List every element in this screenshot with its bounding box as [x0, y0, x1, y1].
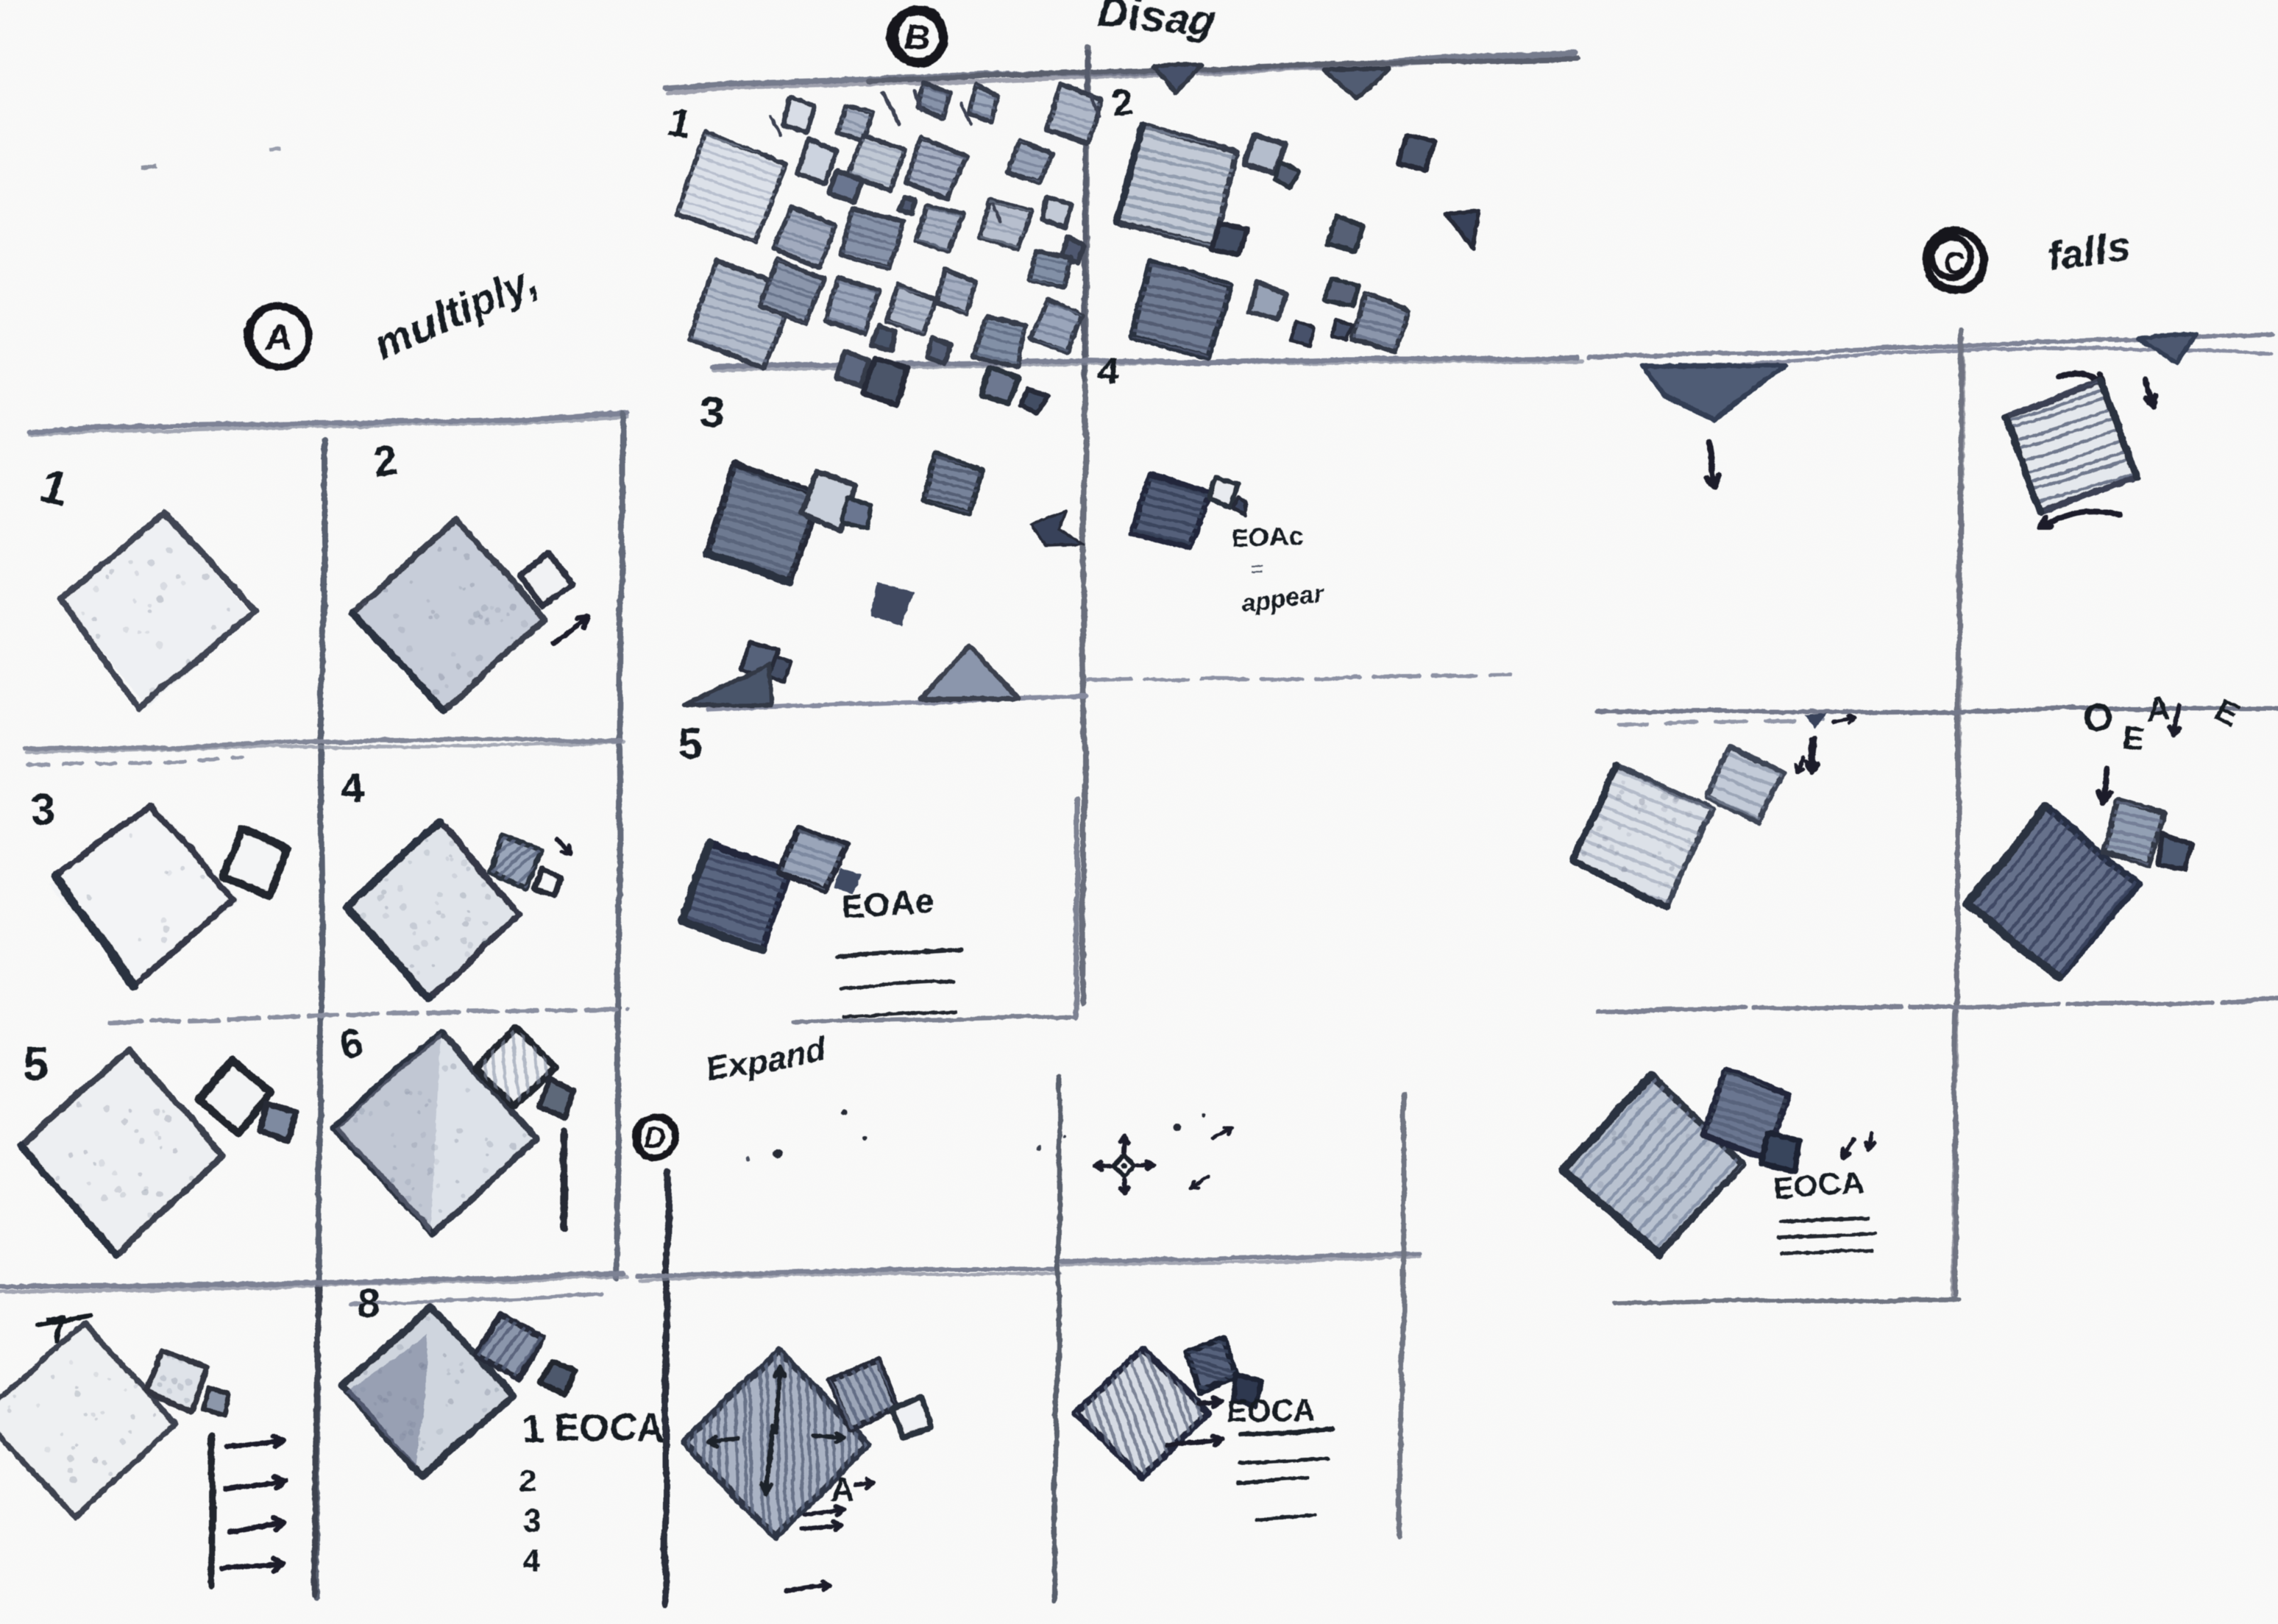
svg-text:D: D: [645, 1122, 666, 1155]
svg-text:2: 2: [518, 1464, 536, 1500]
svg-text:2: 2: [1109, 80, 1135, 125]
svg-text:A: A: [263, 317, 292, 360]
svg-text:EOAc: EOAc: [1230, 520, 1304, 553]
svg-text:3: 3: [31, 784, 56, 834]
svg-text:B: B: [904, 16, 931, 57]
svg-text:A: A: [2144, 688, 2172, 728]
svg-text:1 EOCA: 1 EOCA: [522, 1407, 665, 1450]
svg-text:4: 4: [1098, 350, 1119, 393]
svg-text:5: 5: [24, 1040, 49, 1091]
svg-text:A: A: [830, 1471, 854, 1507]
svg-text:EOAe: EOAe: [841, 881, 936, 926]
svg-text:8: 8: [358, 1280, 380, 1326]
svg-text:3: 3: [522, 1503, 540, 1539]
svg-text:EOCA: EOCA: [1226, 1394, 1315, 1428]
svg-text:=: =: [1251, 556, 1264, 581]
svg-text:5: 5: [678, 720, 703, 769]
svg-text:4: 4: [340, 764, 363, 812]
svg-text:C: C: [1944, 246, 1966, 280]
svg-text:4: 4: [522, 1543, 541, 1579]
svg-text:3: 3: [699, 387, 723, 436]
